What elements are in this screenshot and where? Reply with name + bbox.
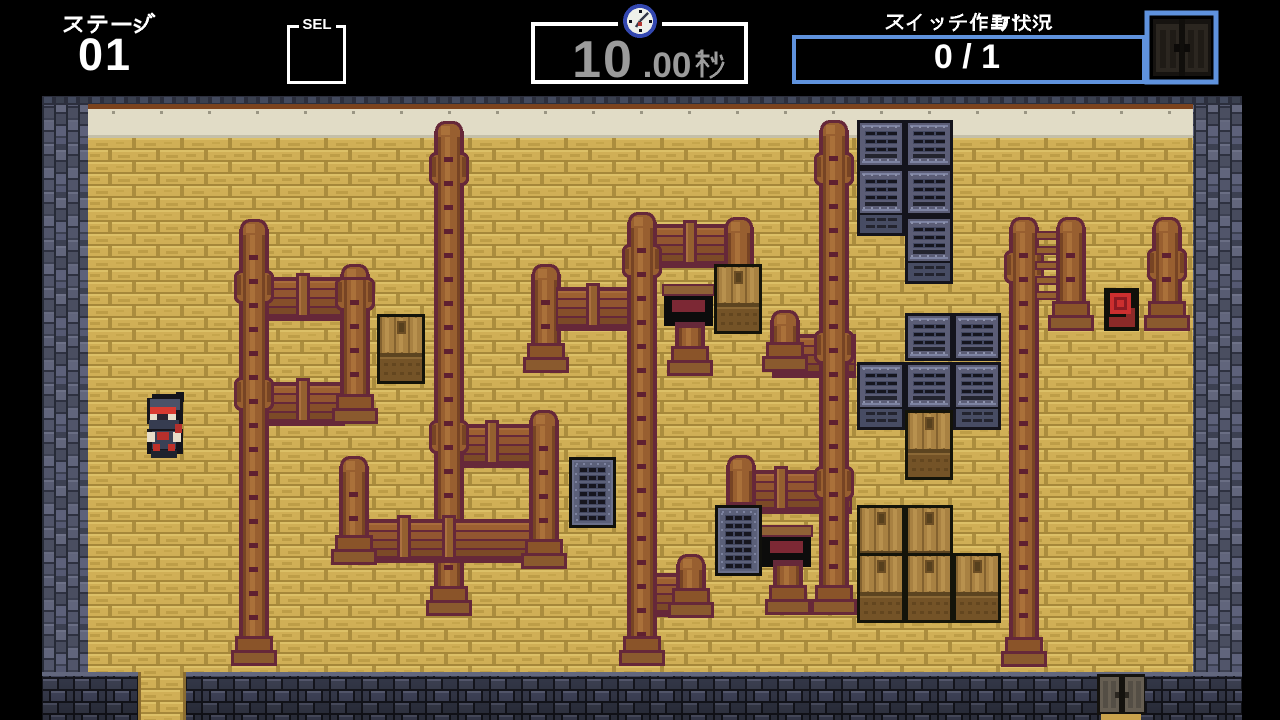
svg-text:.00: .00 [643,46,692,85]
svg-text:0 / 1: 0 / 1 [934,38,1000,76]
svg-text:01: 01 [78,29,132,80]
svg-text:10: 10 [572,31,634,89]
svg-text:SEL: SEL [302,16,331,33]
